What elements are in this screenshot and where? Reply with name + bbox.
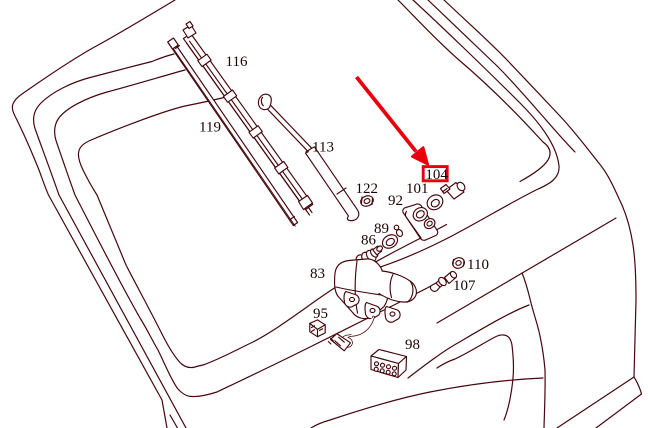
- svg-text:104: 104: [425, 167, 448, 183]
- svg-text:101: 101: [406, 181, 429, 197]
- svg-text:107: 107: [453, 278, 476, 294]
- svg-text:113: 113: [312, 140, 334, 156]
- svg-text:116: 116: [226, 54, 248, 70]
- svg-text:83: 83: [310, 266, 325, 282]
- svg-text:122: 122: [356, 181, 379, 197]
- svg-text:119: 119: [199, 120, 221, 136]
- svg-text:110: 110: [467, 257, 489, 273]
- svg-text:95: 95: [313, 306, 328, 322]
- svg-text:98: 98: [405, 337, 420, 353]
- svg-text:89: 89: [374, 221, 389, 237]
- svg-text:92: 92: [388, 193, 403, 209]
- svg-text:86: 86: [361, 233, 377, 249]
